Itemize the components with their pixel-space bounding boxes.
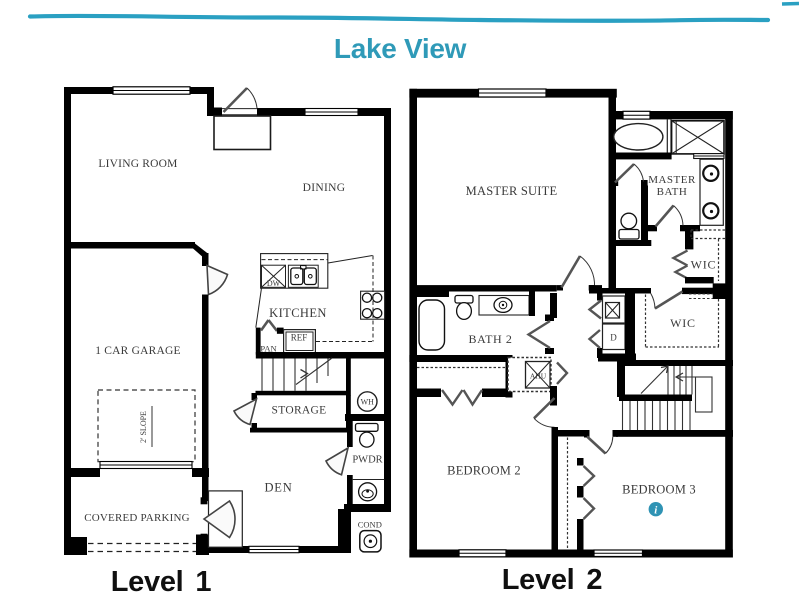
svg-text:DINING: DINING bbox=[303, 182, 346, 194]
svg-text:WIC: WIC bbox=[691, 258, 717, 272]
svg-text:WH: WH bbox=[361, 398, 375, 407]
svg-text:COVERED PARKING: COVERED PARKING bbox=[84, 512, 190, 524]
svg-text:MASTER SUITE: MASTER SUITE bbox=[466, 184, 558, 198]
svg-text:Lake View: Lake View bbox=[334, 33, 467, 64]
svg-text:DEN: DEN bbox=[264, 481, 292, 495]
svg-text:PWDR: PWDR bbox=[352, 455, 382, 466]
svg-text:BATH 2: BATH 2 bbox=[469, 332, 513, 346]
svg-text:AHU: AHU bbox=[530, 372, 547, 381]
svg-text:Level 1: Level 1 bbox=[111, 566, 212, 598]
svg-text:BATH: BATH bbox=[657, 186, 688, 198]
svg-text:Level 2: Level 2 bbox=[502, 564, 603, 596]
svg-text:D: D bbox=[610, 333, 617, 343]
svg-text:MASTER: MASTER bbox=[648, 174, 696, 186]
svg-text:BEDROOM 2: BEDROOM 2 bbox=[447, 464, 521, 478]
svg-text:WIC: WIC bbox=[670, 316, 696, 330]
svg-text:COND: COND bbox=[358, 520, 382, 530]
svg-text:BEDROOM 3: BEDROOM 3 bbox=[622, 483, 696, 497]
svg-text:LIVING ROOM: LIVING ROOM bbox=[98, 158, 177, 170]
svg-text:DW: DW bbox=[267, 279, 281, 288]
svg-text:KITCHEN: KITCHEN bbox=[269, 306, 327, 320]
svg-text:REF: REF bbox=[291, 333, 308, 343]
svg-text:1 CAR GARAGE: 1 CAR GARAGE bbox=[95, 345, 180, 357]
svg-text:2' SLOPE: 2' SLOPE bbox=[139, 411, 148, 443]
svg-text:STORAGE: STORAGE bbox=[272, 405, 327, 417]
